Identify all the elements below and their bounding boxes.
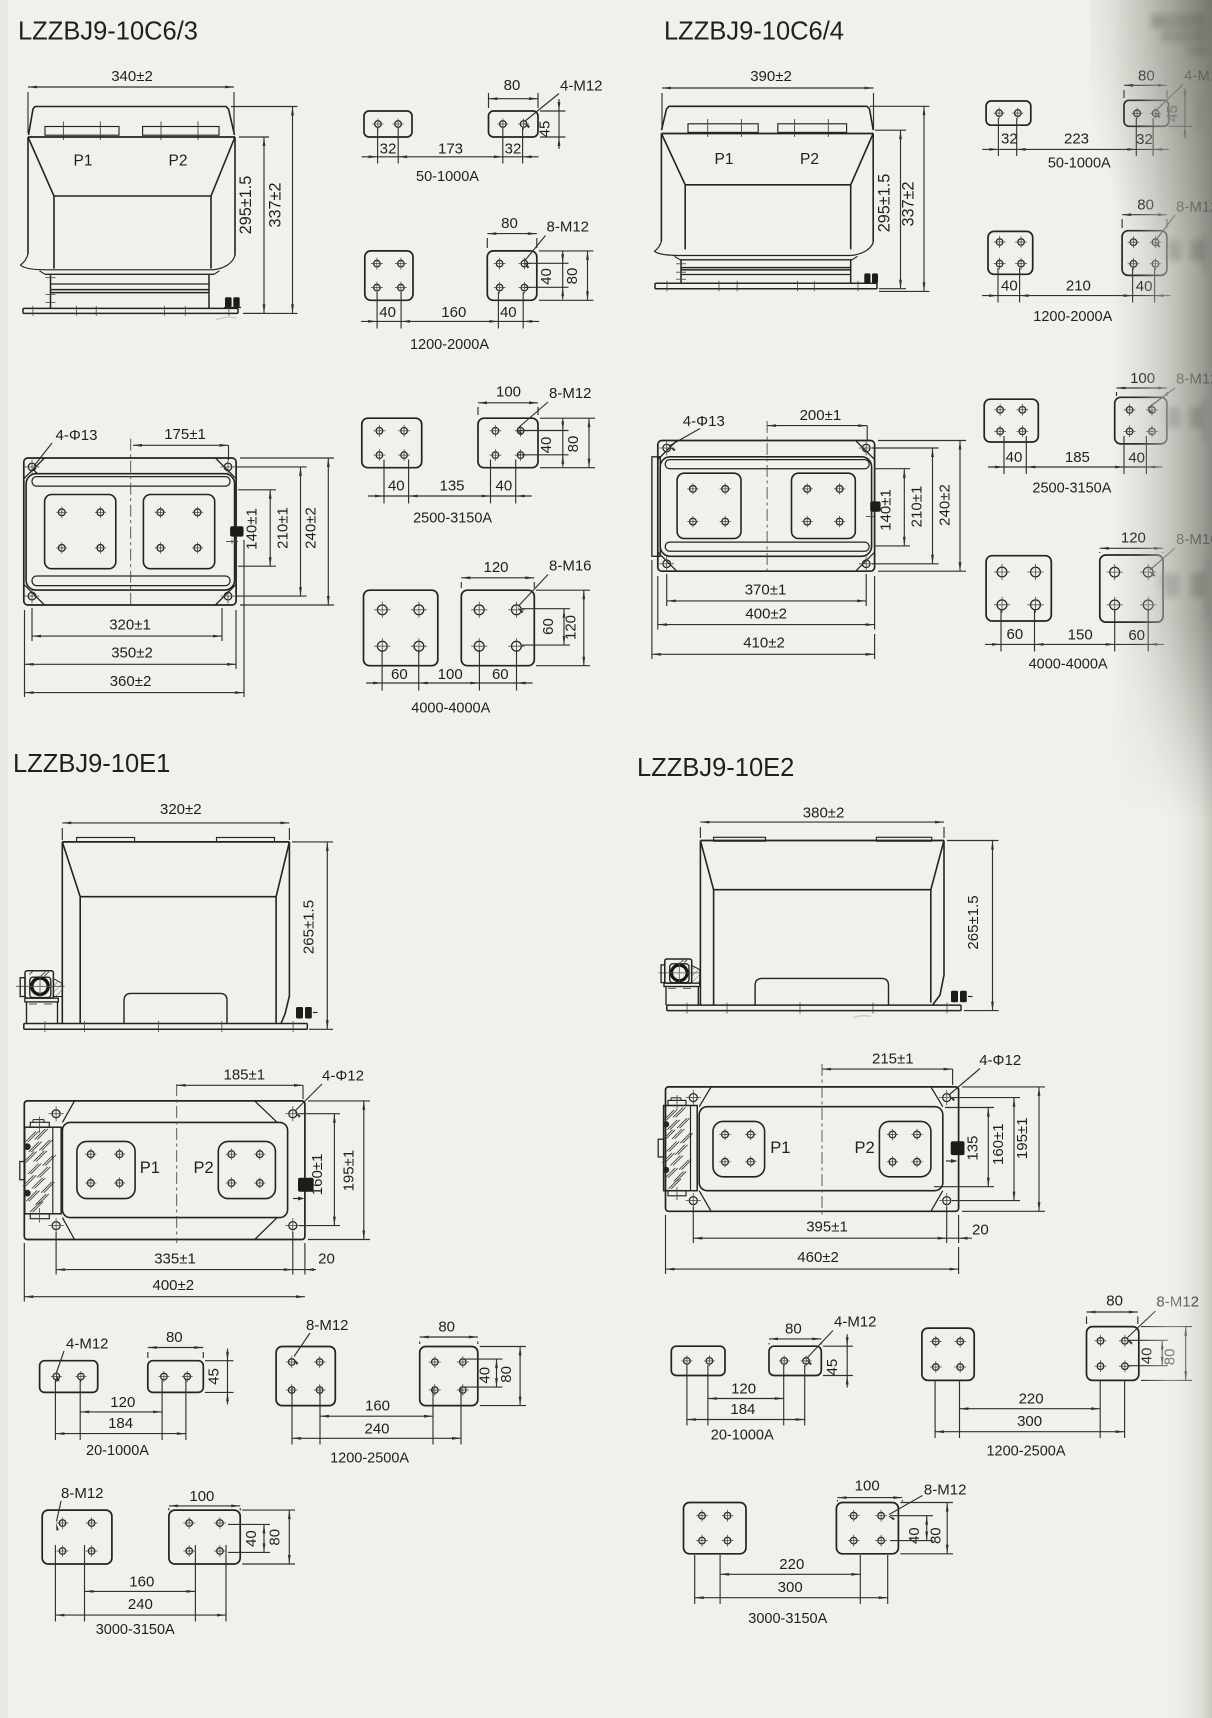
svg-text:410±2: 410±2: [743, 635, 785, 652]
svg-text:185: 185: [1065, 449, 1090, 466]
svg-text:4-Φ12: 4-Φ12: [322, 1068, 364, 1085]
svg-text:80: 80: [498, 1366, 515, 1383]
svg-text:4-Φ13: 4-Φ13: [56, 427, 98, 444]
svg-text:P2: P2: [169, 153, 188, 170]
svg-text:40: 40: [1001, 278, 1018, 295]
svg-text:160: 160: [441, 304, 466, 321]
svg-text:195±1: 195±1: [340, 1150, 357, 1192]
svg-text:8-M12: 8-M12: [547, 219, 590, 236]
svg-text:45: 45: [537, 121, 554, 138]
svg-text:120: 120: [110, 1394, 135, 1411]
svg-text:3000-3150A: 3000-3150A: [96, 1622, 175, 1638]
svg-text:223: 223: [1064, 130, 1089, 147]
svg-text:80: 80: [928, 1527, 945, 1544]
svg-text:240±2: 240±2: [937, 484, 954, 526]
svg-text:40: 40: [243, 1530, 260, 1547]
svg-text:40: 40: [496, 478, 513, 495]
svg-text:80: 80: [1106, 1293, 1123, 1310]
svg-text:220: 220: [1019, 1391, 1044, 1408]
svg-text:370±1: 370±1: [745, 582, 787, 599]
svg-text:4-M12: 4-M12: [66, 1336, 109, 1353]
svg-text:295±1.5: 295±1.5: [237, 176, 255, 234]
svg-text:210±1: 210±1: [909, 486, 926, 528]
svg-text:80: 80: [267, 1529, 284, 1546]
svg-text:335±1: 335±1: [154, 1250, 196, 1267]
svg-text:184: 184: [108, 1415, 133, 1432]
svg-text:60: 60: [540, 618, 557, 635]
svg-text:80: 80: [565, 436, 582, 453]
svg-text:2500-3150A: 2500-3150A: [1032, 481, 1111, 497]
svg-text:395±1: 395±1: [806, 1218, 848, 1235]
svg-text:LZZBJ9-10C6/3: LZZBJ9-10C6/3: [18, 18, 198, 46]
svg-text:175±1: 175±1: [164, 426, 206, 443]
svg-text:20: 20: [972, 1221, 989, 1238]
svg-text:184: 184: [730, 1401, 755, 1418]
svg-text:80: 80: [785, 1320, 802, 1337]
svg-text:320±1: 320±1: [109, 617, 151, 634]
svg-text:300: 300: [1017, 1413, 1042, 1430]
svg-text:160: 160: [129, 1573, 154, 1590]
svg-text:240: 240: [364, 1420, 389, 1437]
svg-text:P1: P1: [74, 153, 93, 170]
svg-text:8-M12: 8-M12: [61, 1485, 104, 1502]
svg-text:40: 40: [538, 268, 555, 285]
svg-text:4-M12: 4-M12: [560, 78, 603, 95]
svg-text:150: 150: [1068, 627, 1093, 644]
svg-text:240±2: 240±2: [303, 507, 320, 549]
svg-text:200±1: 200±1: [800, 407, 842, 424]
svg-text:210: 210: [1066, 278, 1091, 295]
svg-text:8-M12: 8-M12: [306, 1317, 349, 1334]
svg-text:60: 60: [492, 666, 509, 683]
svg-text:20-1000A: 20-1000A: [86, 1443, 149, 1459]
svg-text:4000-4000A: 4000-4000A: [1029, 656, 1108, 672]
svg-text:1200-2500A: 1200-2500A: [330, 1451, 409, 1467]
svg-text:135: 135: [964, 1136, 981, 1161]
svg-text:4-Φ12: 4-Φ12: [979, 1052, 1021, 1069]
svg-text:173: 173: [438, 141, 463, 158]
svg-text:P2: P2: [855, 1139, 875, 1157]
svg-text:60: 60: [1007, 626, 1024, 643]
svg-text:295±1.5: 295±1.5: [876, 174, 894, 232]
svg-text:4-M12: 4-M12: [834, 1314, 877, 1331]
svg-text:460±2: 460±2: [797, 1249, 839, 1266]
svg-text:40: 40: [477, 1367, 494, 1384]
svg-text:100: 100: [438, 666, 463, 683]
svg-text:210±1: 210±1: [275, 507, 292, 549]
svg-text:LZZBJ9-10C6/4: LZZBJ9-10C6/4: [664, 18, 844, 46]
svg-text:140±1: 140±1: [878, 489, 895, 531]
svg-text:20-1000A: 20-1000A: [711, 1428, 774, 1444]
svg-text:360±2: 360±2: [110, 673, 152, 690]
svg-text:160: 160: [365, 1398, 390, 1415]
svg-text:2500-3150A: 2500-3150A: [413, 511, 492, 527]
svg-text:40: 40: [500, 304, 517, 321]
svg-text:215±1: 215±1: [872, 1050, 914, 1067]
svg-text:P2: P2: [800, 151, 819, 168]
svg-text:40: 40: [906, 1527, 923, 1544]
svg-text:80: 80: [501, 215, 518, 232]
svg-text:P1: P1: [140, 1159, 160, 1177]
svg-text:337±2: 337±2: [900, 182, 918, 227]
svg-text:45: 45: [206, 1368, 223, 1385]
svg-text:240: 240: [128, 1596, 153, 1613]
svg-text:40: 40: [1006, 449, 1023, 466]
svg-text:1200-2000A: 1200-2000A: [1033, 309, 1112, 325]
svg-text:340±2: 340±2: [111, 68, 153, 85]
svg-text:20: 20: [318, 1250, 335, 1267]
svg-text:140±1: 140±1: [244, 508, 261, 550]
svg-text:195±1: 195±1: [1014, 1117, 1031, 1159]
svg-text:4000-4000A: 4000-4000A: [411, 701, 490, 717]
svg-text:120: 120: [563, 615, 580, 640]
svg-text:LZZBJ9-10E2: LZZBJ9-10E2: [637, 754, 794, 782]
svg-text:220: 220: [779, 1556, 804, 1573]
svg-text:400±2: 400±2: [745, 606, 787, 623]
svg-text:1200-2000A: 1200-2000A: [410, 337, 489, 353]
svg-text:8-M12: 8-M12: [924, 1482, 967, 1499]
svg-text:8-M12: 8-M12: [549, 385, 592, 402]
svg-text:120: 120: [731, 1381, 756, 1398]
svg-text:390±2: 390±2: [750, 68, 792, 85]
svg-text:32: 32: [1001, 131, 1018, 148]
svg-text:4-Φ13: 4-Φ13: [683, 413, 725, 430]
svg-text:100: 100: [189, 1488, 214, 1505]
svg-text:40: 40: [538, 437, 555, 454]
svg-text:80: 80: [504, 77, 521, 94]
svg-text:350±2: 350±2: [111, 645, 153, 662]
svg-text:80: 80: [438, 1318, 455, 1335]
svg-text:100: 100: [855, 1477, 880, 1494]
svg-text:32: 32: [505, 141, 522, 158]
svg-text:100: 100: [496, 384, 521, 401]
svg-text:1200-2500A: 1200-2500A: [986, 1444, 1065, 1460]
svg-text:120: 120: [483, 559, 508, 576]
svg-text:32: 32: [380, 141, 397, 158]
svg-text:50-1000A: 50-1000A: [416, 169, 479, 185]
svg-text:185±1: 185±1: [223, 1067, 265, 1084]
svg-text:8-M16: 8-M16: [549, 558, 592, 575]
svg-text:300: 300: [778, 1579, 803, 1596]
svg-text:P2: P2: [194, 1159, 214, 1177]
svg-text:60: 60: [391, 666, 408, 683]
svg-text:320±2: 320±2: [160, 801, 202, 818]
svg-text:380±2: 380±2: [803, 805, 845, 822]
svg-text:135: 135: [439, 478, 464, 495]
svg-text:160±1: 160±1: [309, 1154, 326, 1196]
svg-text:400±2: 400±2: [152, 1277, 194, 1294]
svg-text:LZZBJ9-10E1: LZZBJ9-10E1: [13, 750, 170, 778]
svg-text:160±1: 160±1: [990, 1123, 1007, 1165]
svg-text:337±2: 337±2: [267, 183, 285, 228]
svg-text:265±1.5: 265±1.5: [301, 900, 318, 954]
svg-text:3000-3150A: 3000-3150A: [748, 1611, 827, 1627]
svg-text:45: 45: [824, 1359, 841, 1376]
svg-text:265±1.5: 265±1.5: [965, 895, 982, 949]
svg-text:P1: P1: [770, 1139, 790, 1157]
svg-text:80: 80: [166, 1329, 183, 1346]
svg-text:40: 40: [388, 478, 405, 495]
svg-text:40: 40: [379, 304, 396, 321]
svg-text:80: 80: [564, 268, 581, 285]
svg-text:P1: P1: [715, 151, 734, 168]
